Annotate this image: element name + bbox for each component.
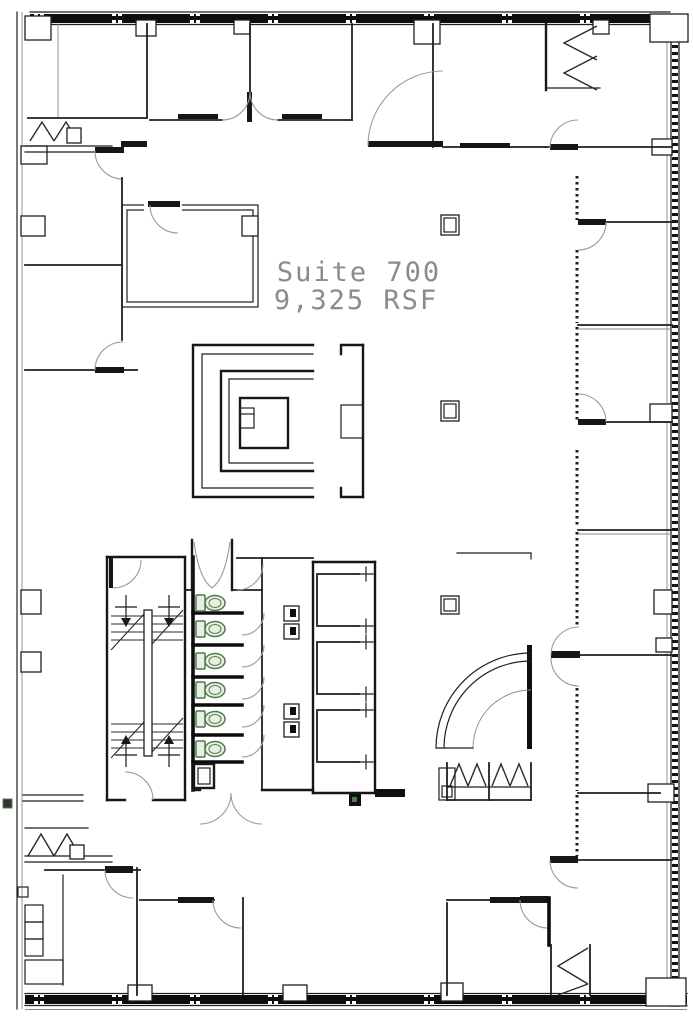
door-swing	[520, 900, 548, 928]
door-swing	[213, 900, 241, 928]
pilaster	[21, 652, 41, 672]
sidelite	[178, 114, 218, 119]
door-swing	[368, 71, 443, 146]
restroom-entry-door	[192, 540, 232, 590]
bottom-offices	[3, 795, 590, 995]
wall-stub	[375, 789, 405, 797]
free-columns	[441, 215, 459, 614]
door-swing	[551, 658, 579, 686]
door-leaf	[109, 558, 113, 588]
elevator-call-panels	[284, 606, 299, 737]
door-swing	[237, 564, 263, 590]
kitchen-millwork	[3, 795, 112, 985]
pilaster	[650, 404, 672, 422]
bottom-window-wall	[25, 995, 687, 1004]
stairwell	[107, 557, 185, 800]
floor-plan-drawing: Suite 700 9,325 RSF	[0, 0, 693, 1024]
pilaster	[242, 216, 258, 236]
column	[283, 985, 307, 1001]
bracket-casework	[341, 345, 363, 497]
column	[234, 20, 250, 34]
door-leaf	[578, 419, 606, 425]
door-swing	[550, 120, 578, 148]
door-leaf	[368, 141, 443, 147]
door-swing	[578, 222, 606, 250]
door-leaf	[95, 367, 124, 373]
door-leaf	[550, 144, 578, 150]
column	[646, 978, 686, 1006]
toilet-fixture	[196, 595, 225, 611]
suite-label-group: Suite 700 9,325 RSF	[274, 257, 441, 316]
door-swing	[551, 627, 579, 655]
sidelite	[282, 114, 322, 119]
stair-rail	[144, 610, 152, 756]
floor-plan-page: Suite 700 9,325 RSF	[0, 0, 693, 1024]
suite-label: Suite 700	[277, 257, 441, 288]
door-swing	[578, 394, 606, 422]
door-leaf	[551, 651, 580, 658]
center-table	[240, 398, 288, 448]
column	[25, 16, 51, 40]
pilaster	[21, 590, 41, 614]
elevator-cab	[317, 567, 373, 633]
door-leaf	[550, 856, 578, 863]
pilaster	[656, 638, 672, 652]
toilet-fixture	[196, 741, 225, 757]
area-label: 9,325 RSF	[274, 285, 438, 316]
east-offices	[550, 176, 672, 888]
elevator-cab	[317, 703, 373, 769]
reception-area	[436, 553, 532, 800]
door-swing	[250, 92, 278, 120]
door-swing	[550, 860, 578, 888]
closet-bifold	[551, 945, 590, 995]
door-leaf	[105, 866, 133, 873]
door-swing	[125, 772, 153, 800]
door-leaf	[95, 147, 124, 153]
column	[128, 985, 152, 1001]
conference-room	[122, 200, 258, 307]
door-leaf	[148, 201, 180, 207]
building-core	[107, 540, 405, 824]
sidelite	[490, 897, 520, 903]
door-swing	[113, 560, 141, 588]
sidelite	[460, 143, 510, 148]
toilet-fixture	[196, 711, 225, 727]
toilet-fixture	[196, 653, 225, 669]
door-leaf	[520, 896, 548, 903]
column	[441, 983, 463, 1001]
door-swing	[200, 793, 231, 824]
restrooms	[185, 540, 264, 790]
pilaster	[654, 590, 672, 614]
top-offices	[28, 24, 672, 150]
toilet-fixture	[196, 682, 225, 698]
door-swing	[231, 793, 262, 824]
central-casework	[193, 345, 363, 497]
sidelite	[178, 897, 214, 903]
reception-desk	[436, 645, 532, 749]
door-leaf	[578, 219, 606, 225]
door-swing	[105, 870, 133, 898]
door-swing	[222, 92, 250, 120]
door-swing	[95, 151, 123, 179]
toilet-fixture	[196, 621, 225, 637]
elevator-cab	[317, 635, 373, 701]
door-leaf	[121, 141, 147, 147]
closet-bifold	[546, 24, 600, 90]
column	[650, 14, 688, 42]
top-window-wall	[30, 14, 670, 23]
column	[414, 20, 440, 44]
column	[136, 20, 156, 36]
pilaster	[21, 216, 45, 236]
reception-closets	[439, 763, 531, 800]
pilaster	[21, 146, 47, 164]
door-swing	[95, 342, 123, 370]
